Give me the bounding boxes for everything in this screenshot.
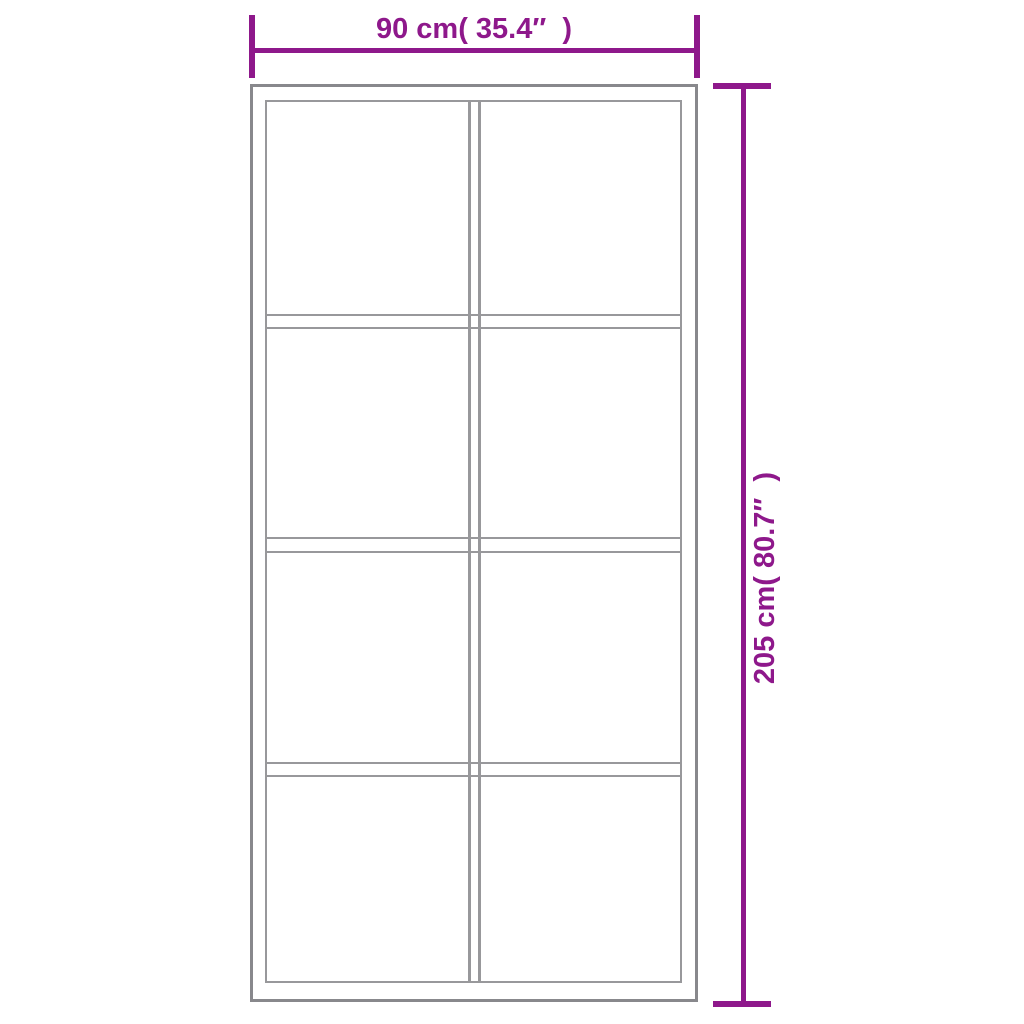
height-dimension-label: 205 cm( 80.7″ ) <box>750 472 780 684</box>
rail-line <box>265 551 682 554</box>
rail-line <box>265 762 682 765</box>
rail-line <box>265 327 682 330</box>
width-dimension-line <box>250 48 698 53</box>
rail-line <box>265 775 682 778</box>
height-dimension-line <box>741 84 746 1006</box>
width-dimension-label: 90 cm( 35.4″ ) <box>250 14 698 44</box>
glass-panel-area-outline <box>265 100 682 983</box>
dimension-tick <box>713 1001 771 1007</box>
dimension-tick <box>713 83 771 89</box>
rail-line <box>265 314 682 317</box>
center-mullion-line <box>468 100 471 983</box>
center-mullion-line <box>478 100 481 983</box>
dimension-diagram: 90 cm( 35.4″ ) 205 cm( 80.7″ ) <box>0 0 1024 1024</box>
rail-line <box>265 537 682 540</box>
